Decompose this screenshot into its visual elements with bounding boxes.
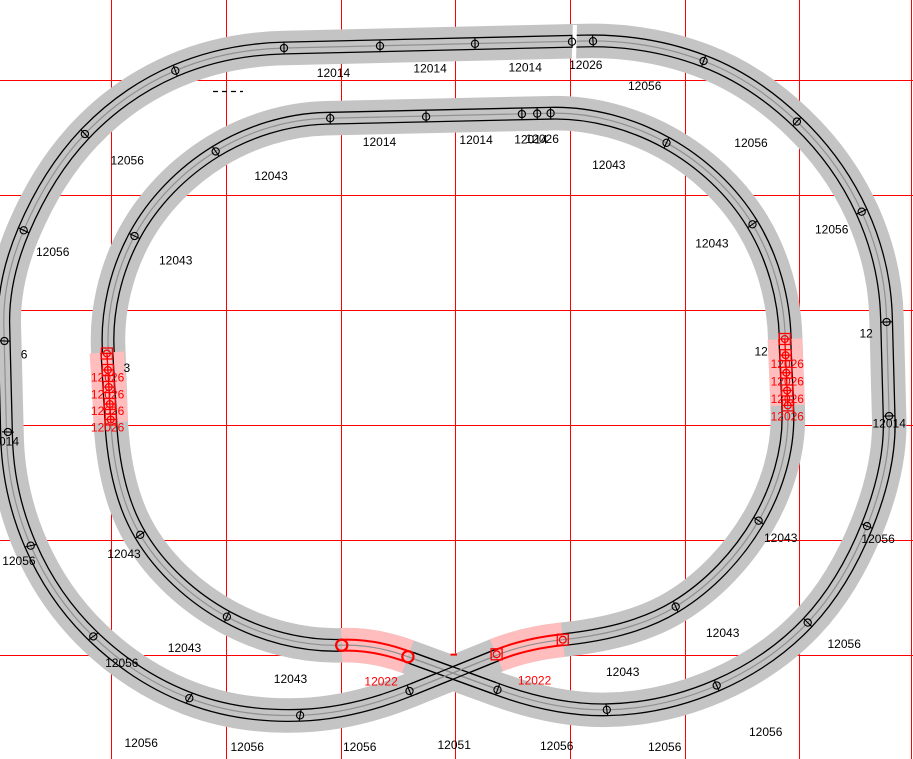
svg-text:12026: 12026 bbox=[771, 410, 805, 424]
svg-text:12043: 12043 bbox=[274, 672, 308, 686]
svg-text:12056: 12056 bbox=[648, 740, 682, 754]
svg-text:3: 3 bbox=[124, 361, 131, 375]
svg-text:12043: 12043 bbox=[706, 626, 740, 640]
svg-text:12043: 12043 bbox=[606, 665, 640, 679]
svg-text:12043: 12043 bbox=[764, 531, 798, 545]
svg-text:12014: 12014 bbox=[509, 61, 543, 75]
svg-text:12056: 12056 bbox=[105, 656, 139, 670]
svg-text:12: 12 bbox=[755, 345, 769, 359]
svg-text:12014: 12014 bbox=[317, 66, 351, 80]
svg-text:12026: 12026 bbox=[569, 58, 603, 72]
svg-text:12056: 12056 bbox=[125, 736, 159, 750]
svg-text:12022: 12022 bbox=[364, 675, 398, 689]
svg-text:12056: 12056 bbox=[2, 554, 36, 568]
svg-text:12056: 12056 bbox=[861, 532, 895, 546]
svg-text:6: 6 bbox=[21, 347, 28, 361]
svg-text:12026: 12026 bbox=[91, 371, 125, 385]
svg-text:12014: 12014 bbox=[459, 133, 493, 147]
svg-text:12026: 12026 bbox=[91, 404, 125, 418]
svg-text:12014: 12014 bbox=[413, 62, 447, 76]
svg-text:12014: 12014 bbox=[363, 135, 397, 149]
svg-text:12056: 12056 bbox=[749, 725, 783, 739]
svg-text:12026: 12026 bbox=[91, 421, 125, 435]
svg-text:12043: 12043 bbox=[254, 169, 288, 183]
svg-text:12056: 12056 bbox=[815, 223, 849, 237]
svg-text:12056: 12056 bbox=[343, 740, 377, 754]
svg-text:12051: 12051 bbox=[438, 738, 472, 752]
svg-text:12026: 12026 bbox=[91, 388, 125, 402]
svg-text:12056: 12056 bbox=[231, 740, 265, 754]
svg-text:12056: 12056 bbox=[628, 79, 662, 93]
svg-text:014: 014 bbox=[0, 434, 19, 448]
svg-text:12014: 12014 bbox=[873, 417, 907, 431]
svg-text:12: 12 bbox=[860, 326, 874, 340]
svg-text:12026: 12026 bbox=[526, 132, 560, 146]
svg-text:12043: 12043 bbox=[695, 237, 729, 251]
svg-text:12026: 12026 bbox=[771, 392, 805, 406]
svg-text:12056: 12056 bbox=[828, 637, 862, 651]
svg-text:12043: 12043 bbox=[159, 254, 193, 268]
svg-text:12043: 12043 bbox=[168, 641, 202, 655]
svg-text:12056: 12056 bbox=[36, 245, 70, 259]
svg-text:12022: 12022 bbox=[518, 674, 552, 688]
svg-text:12026: 12026 bbox=[771, 357, 805, 371]
svg-text:12056: 12056 bbox=[540, 739, 574, 753]
svg-text:12043: 12043 bbox=[592, 158, 626, 172]
svg-text:12056: 12056 bbox=[734, 136, 768, 150]
svg-text:12056: 12056 bbox=[111, 154, 145, 168]
svg-text:12026: 12026 bbox=[771, 375, 805, 389]
svg-text:12043: 12043 bbox=[107, 547, 141, 561]
